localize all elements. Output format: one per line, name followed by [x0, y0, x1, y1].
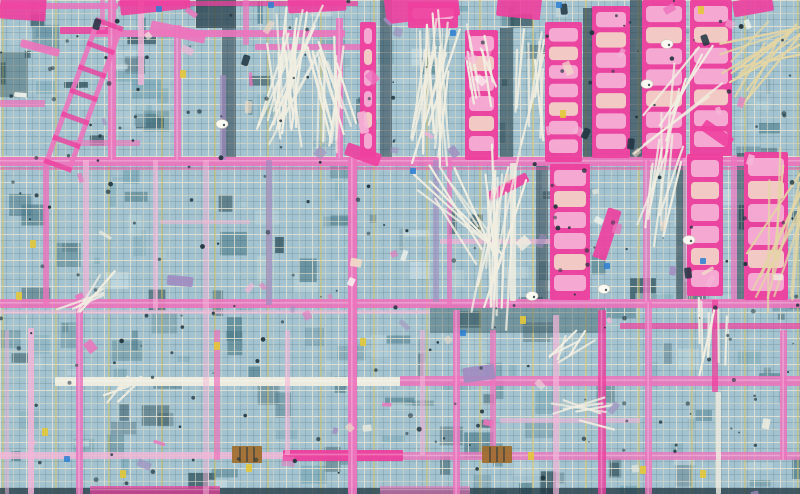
tie-dot — [367, 232, 371, 236]
tie-dot — [0, 51, 2, 53]
tie-dot — [75, 364, 78, 367]
blue-fitting — [410, 168, 416, 174]
tie-dot — [35, 193, 39, 197]
tie-dot — [495, 307, 497, 309]
v-beam — [716, 392, 721, 494]
tie-dot — [374, 368, 378, 372]
tie-dot — [11, 180, 14, 183]
v-beam — [28, 328, 34, 494]
blue-fitting — [156, 6, 162, 12]
debris-scrap — [290, 305, 295, 312]
formwork-panel — [687, 154, 723, 296]
tie-dot — [170, 351, 173, 354]
tie-dot — [675, 444, 678, 447]
tie-dot — [475, 467, 479, 471]
debris-scrap — [245, 101, 252, 114]
tie-dot — [693, 39, 695, 41]
yellow-fitting — [246, 464, 252, 472]
tie-dot — [368, 97, 371, 100]
dark-equipment — [627, 138, 635, 150]
tie-dot — [392, 81, 394, 83]
tie-dot — [190, 198, 194, 202]
white-helmet — [661, 40, 673, 49]
v-beam — [83, 160, 89, 305]
tie-dot — [707, 358, 711, 362]
debris-scrap — [631, 464, 639, 472]
tie-dot — [551, 184, 554, 187]
tie-dot — [755, 125, 758, 128]
tie-dot — [629, 21, 632, 24]
tie-dot — [67, 154, 70, 157]
tie-dot — [474, 247, 476, 249]
tie-dot — [699, 317, 701, 319]
tie-dot — [611, 220, 615, 224]
h-beam — [283, 450, 403, 461]
tie-dot — [35, 404, 38, 407]
tie-dot — [527, 365, 530, 368]
tie-dot — [38, 461, 42, 465]
tie-dot — [110, 453, 113, 456]
tie-dot — [97, 159, 100, 162]
tie-dot — [306, 76, 309, 79]
white-helmet — [598, 285, 610, 294]
tie-dot — [782, 221, 785, 224]
formwork-panel — [360, 22, 376, 158]
tie-dot — [320, 296, 322, 298]
tie-dot — [690, 413, 692, 415]
tie-dot — [107, 81, 112, 86]
tie-dot — [243, 414, 247, 418]
tie-dot — [151, 376, 154, 379]
dark-equipment — [684, 267, 692, 279]
tie-dot — [435, 441, 437, 443]
tie-dot — [98, 134, 102, 138]
formwork-panel — [545, 22, 582, 162]
tie-dot — [217, 243, 219, 245]
tie-dot — [417, 427, 422, 432]
tie-dot — [119, 127, 122, 130]
white-helmet — [526, 292, 538, 301]
tie-dot — [158, 258, 161, 261]
tie-dot — [30, 332, 32, 334]
tie-dot — [51, 66, 55, 70]
tie-dot — [220, 115, 222, 117]
tie-dot — [584, 399, 586, 401]
yellow-fitting — [360, 338, 366, 346]
tie-dot — [713, 305, 717, 309]
tie-dot — [94, 477, 99, 482]
tie-dot — [125, 481, 129, 485]
tie-dot — [781, 39, 784, 42]
debris-scrap — [774, 274, 784, 280]
blue-fitting — [268, 2, 274, 8]
blue-fitting — [450, 30, 456, 36]
tie-dot — [553, 216, 557, 220]
tie-dot — [751, 309, 756, 314]
tie-dot — [133, 222, 136, 225]
tie-dot — [77, 273, 80, 276]
blue-fitting — [460, 330, 466, 336]
tie-dot — [729, 338, 732, 341]
yellow-fitting — [640, 466, 646, 474]
debris-scrap — [382, 403, 392, 407]
tie-dot — [582, 168, 587, 173]
h-beam — [60, 27, 115, 34]
tie-dot — [113, 361, 116, 364]
v-beam — [203, 160, 209, 494]
tie-dot — [104, 56, 107, 59]
tie-dot — [588, 81, 592, 85]
debris-scrap — [362, 424, 371, 431]
tie-dot — [730, 427, 732, 429]
tie-dot — [136, 88, 139, 91]
tie-dot — [658, 176, 662, 180]
tie-dot — [187, 111, 190, 114]
tie-dot — [726, 334, 729, 337]
yellow-fitting — [120, 470, 126, 478]
blue-fitting — [700, 258, 706, 264]
tie-dot — [391, 96, 395, 100]
tie-dot — [593, 246, 595, 248]
tie-dot — [29, 218, 31, 220]
tie-dot — [545, 35, 548, 38]
tie-dot — [791, 217, 793, 219]
tie-dot — [34, 156, 38, 160]
tie-dot — [727, 89, 732, 94]
tie-dot — [264, 97, 268, 101]
tie-dot — [68, 381, 72, 385]
tie-dot — [393, 139, 395, 141]
tie-dot — [615, 14, 618, 17]
v-beam — [490, 330, 496, 460]
tie-dot — [612, 70, 615, 73]
yellow-fitting — [698, 6, 704, 14]
tie-dot — [556, 226, 561, 231]
tie-dot — [533, 162, 537, 166]
tie-dot — [383, 224, 385, 226]
tie-dot — [106, 190, 111, 195]
tie-dot — [739, 24, 744, 29]
tie-dot — [662, 237, 664, 239]
tie-dot — [293, 77, 295, 79]
wood-pallet — [482, 446, 512, 463]
tie-dot — [319, 161, 322, 164]
tie-dot — [316, 437, 320, 441]
tie-dot — [553, 204, 557, 208]
v-beam — [5, 330, 9, 494]
tie-dot — [653, 104, 655, 106]
tie-dot — [541, 476, 546, 481]
tie-dot — [622, 401, 626, 405]
tie-dot — [590, 30, 595, 35]
debris-scrap — [660, 221, 666, 231]
tie-dot — [796, 304, 799, 307]
tie-dot — [479, 366, 482, 369]
tie-dot — [690, 226, 693, 229]
tie-dot — [17, 346, 21, 350]
tie-dot — [585, 248, 590, 253]
formwork-panel — [592, 6, 630, 158]
tie-dot — [582, 437, 586, 441]
debris-scrap — [669, 266, 677, 276]
tie-dot — [792, 343, 794, 345]
yellow-fitting — [520, 316, 526, 324]
pink-slab — [0, 0, 47, 22]
v-beam — [433, 160, 439, 302]
tie-dot — [180, 314, 182, 316]
tie-dot — [288, 26, 291, 29]
yellow-fitting — [16, 292, 22, 300]
tie-dot — [200, 244, 205, 249]
tie-dot — [41, 264, 45, 268]
tie-dot — [66, 39, 69, 42]
v-beam — [285, 330, 290, 455]
yellow-fitting — [560, 110, 566, 118]
tie-dot — [145, 314, 149, 318]
tie-dot — [292, 274, 295, 277]
debris-scrap — [505, 173, 511, 183]
tie-dot — [790, 180, 795, 185]
tie-dot — [293, 459, 297, 463]
yellow-fitting — [214, 342, 220, 350]
formwork-panel — [550, 164, 590, 300]
tie-dot — [726, 260, 729, 263]
tie-dot — [280, 146, 283, 149]
tie-dot — [789, 74, 791, 76]
tie-dot — [469, 444, 471, 446]
tie-dot — [673, 450, 676, 453]
tie-dot — [132, 139, 135, 142]
tie-dot — [48, 206, 51, 209]
tie-dot — [560, 69, 564, 73]
tie-dot — [625, 248, 627, 250]
tie-dot — [145, 55, 149, 59]
tie-dot — [787, 371, 789, 373]
photo-render — [0, 0, 800, 494]
tie-dot — [437, 341, 440, 344]
tie-dot — [305, 28, 309, 32]
tie-dot — [783, 114, 787, 118]
v-beam — [43, 157, 49, 307]
tie-dot — [9, 94, 13, 98]
tie-dot — [219, 155, 224, 160]
tie-dot — [625, 420, 628, 423]
tie-dot — [408, 413, 413, 418]
tie-dot — [754, 444, 757, 447]
tie-dot — [622, 449, 625, 452]
tie-dot — [115, 19, 120, 24]
blue-fitting — [64, 456, 70, 462]
tie-dot — [307, 200, 310, 203]
yellow-fitting — [42, 428, 48, 436]
h-beam — [0, 310, 430, 314]
tie-dot — [443, 437, 445, 439]
tie-dot — [454, 403, 457, 406]
tie-dot — [588, 441, 590, 443]
tie-dot — [426, 66, 428, 68]
tie-dot — [94, 288, 98, 292]
h-beam — [500, 418, 640, 423]
tie-dot — [192, 459, 195, 462]
tie-dot — [281, 320, 284, 323]
tie-dot — [266, 230, 271, 235]
tie-dot — [405, 432, 408, 435]
tie-dot — [794, 295, 798, 299]
tie-dot — [237, 457, 240, 460]
tie-dot — [393, 305, 397, 309]
tie-dot — [212, 312, 215, 315]
tie-dot — [338, 472, 340, 474]
tie-dot — [261, 337, 266, 342]
blue-fitting — [556, 2, 562, 8]
tie-dot — [19, 192, 21, 194]
tie-dot — [686, 401, 690, 405]
tie-dot — [52, 97, 56, 101]
tie-dot — [108, 182, 113, 187]
tie-dot — [134, 115, 137, 118]
blue-fitting — [604, 263, 610, 269]
white-helmet — [641, 80, 653, 89]
tie-dot — [637, 50, 639, 52]
tie-dot — [743, 262, 747, 266]
tie-dot — [622, 316, 627, 321]
tie-dot — [279, 119, 282, 122]
tie-dot — [604, 327, 606, 329]
tie-dot — [189, 45, 191, 47]
v-beam — [420, 330, 425, 455]
tie-dot — [181, 325, 185, 329]
tie-dot — [336, 290, 338, 292]
yellow-fitting — [180, 70, 186, 78]
v-beam — [100, 0, 105, 30]
tie-dot — [151, 469, 156, 474]
v-beam — [243, 0, 249, 45]
tie-dot — [140, 345, 142, 347]
tie-dot — [719, 20, 722, 23]
yellow-fitting — [700, 470, 706, 478]
tie-dot — [264, 175, 267, 178]
v-beam — [153, 160, 158, 310]
tie-dot — [304, 54, 306, 56]
yellow-fitting — [528, 452, 534, 460]
tie-dot — [753, 395, 756, 398]
tie-dot — [233, 305, 235, 307]
tie-dot — [188, 166, 191, 169]
tie-dot — [197, 109, 202, 114]
tie-dot — [229, 14, 232, 17]
tie-dot — [476, 424, 480, 428]
h-beam — [255, 44, 375, 50]
v-beam — [731, 155, 737, 300]
tie-dot — [119, 339, 124, 344]
formwork-panel — [642, 0, 686, 158]
tie-dot — [673, 0, 675, 2]
tie-dot — [670, 56, 674, 60]
tie-dot — [179, 425, 182, 428]
tie-dot — [732, 378, 736, 382]
tie-dot — [494, 326, 496, 328]
tie-dot — [356, 198, 360, 202]
white-helmet — [216, 120, 228, 129]
tie-dot — [254, 458, 259, 463]
v-beam — [220, 75, 226, 160]
tie-dot — [429, 349, 432, 352]
yellow-fitting — [30, 240, 36, 248]
tie-dot — [255, 359, 259, 363]
tie-dot — [754, 398, 757, 401]
h-beam — [0, 100, 45, 107]
tie-dot — [568, 226, 571, 229]
tie-dot — [481, 41, 485, 45]
tie-dot — [585, 263, 589, 267]
tie-dot — [623, 25, 625, 27]
tie-dot — [89, 124, 92, 127]
tie-dot — [743, 216, 747, 220]
tie-dot — [635, 116, 638, 119]
tie-dot — [513, 304, 516, 307]
tie-dot — [574, 293, 576, 295]
tie-dot — [738, 432, 740, 434]
white-helmet — [683, 236, 695, 245]
tie-dot — [367, 185, 371, 189]
tie-dot — [452, 258, 457, 263]
tie-dot — [76, 35, 78, 37]
tie-dot — [191, 396, 195, 400]
tie-dot — [405, 229, 408, 232]
tie-dot — [212, 372, 214, 374]
tie-dot — [659, 420, 662, 423]
tie-dot — [480, 410, 484, 414]
aerial-construction-photo: Aerial top-down photograph of a construc… — [0, 0, 800, 494]
tie-dot — [558, 268, 562, 272]
